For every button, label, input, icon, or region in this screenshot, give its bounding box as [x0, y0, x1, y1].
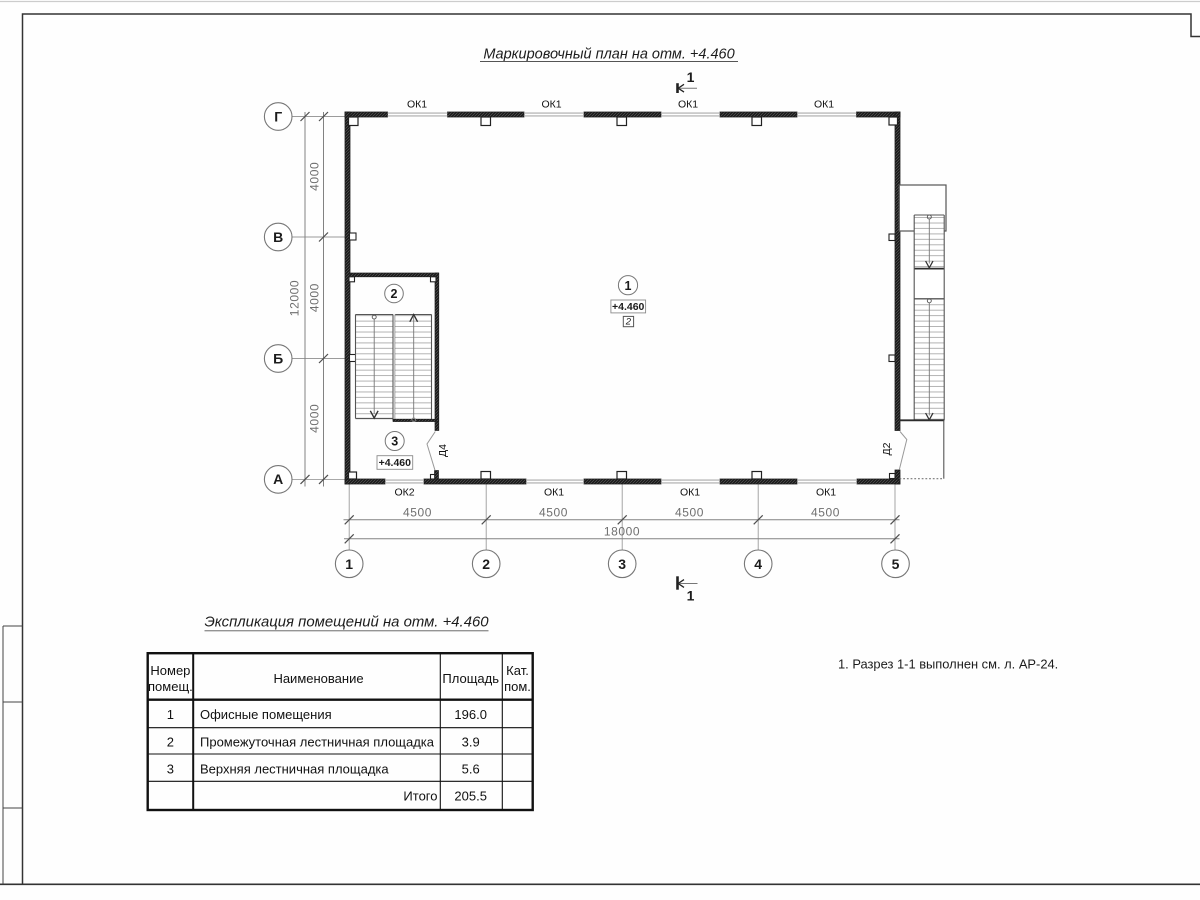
svg-text:Кат.: Кат.	[506, 663, 529, 678]
svg-text:3.9: 3.9	[462, 735, 480, 750]
svg-text:Итого: Итого	[403, 789, 437, 804]
svg-text:Верхняя лестничная площадка: Верхняя лестничная площадка	[200, 762, 389, 777]
svg-text:Экспликация помещений на отм.: Экспликация помещений на отм. +4.460	[204, 615, 489, 631]
svg-text:4500: 4500	[539, 506, 568, 520]
svg-text:12000: 12000	[288, 280, 302, 316]
svg-text:3: 3	[391, 435, 398, 449]
svg-text:2: 2	[391, 287, 398, 301]
svg-text:4: 4	[754, 556, 762, 572]
svg-text:В: В	[273, 229, 283, 245]
svg-text:+4.460: +4.460	[612, 301, 645, 313]
svg-text:1: 1	[687, 69, 695, 85]
svg-text:4500: 4500	[811, 506, 840, 520]
svg-text:1: 1	[167, 707, 174, 722]
svg-text:196.0: 196.0	[454, 707, 487, 722]
svg-text:ОК1: ОК1	[544, 487, 564, 499]
svg-text:1. Разрез 1-1 выполнен см. л.: 1. Разрез 1-1 выполнен см. л. АР-24.	[838, 656, 1058, 671]
svg-text:2: 2	[482, 556, 490, 572]
svg-text:Маркировочный план на отм. +4.: Маркировочный план на отм. +4.460	[483, 47, 734, 63]
svg-text:А: А	[273, 471, 283, 487]
svg-text:4500: 4500	[403, 506, 432, 520]
svg-text:4000: 4000	[308, 404, 322, 433]
svg-text:5: 5	[892, 556, 900, 572]
svg-text:3: 3	[167, 762, 174, 777]
svg-text:Наименование: Наименование	[273, 671, 363, 686]
svg-text:1: 1	[625, 279, 632, 293]
svg-text:205.5: 205.5	[454, 789, 487, 804]
svg-text:пом.: пом.	[504, 679, 531, 694]
svg-text:Офисные помещения: Офисные помещения	[200, 707, 332, 722]
svg-text:4500: 4500	[675, 506, 704, 520]
svg-text:2: 2	[625, 317, 632, 328]
svg-text:+4.460: +4.460	[379, 457, 412, 469]
svg-text:ОК1: ОК1	[678, 99, 698, 111]
svg-text:Б: Б	[273, 350, 283, 366]
svg-text:3: 3	[618, 556, 626, 572]
svg-text:5.6: 5.6	[462, 762, 480, 777]
svg-text:ОК1: ОК1	[541, 99, 561, 111]
svg-text:ОК1: ОК1	[816, 487, 836, 499]
svg-text:Д4: Д4	[437, 444, 449, 457]
svg-text:1: 1	[687, 588, 695, 604]
svg-text:Промежуточная лестничная площа: Промежуточная лестничная площадка	[200, 735, 435, 750]
svg-text:Г: Г	[274, 108, 282, 124]
svg-text:Номер: Номер	[150, 663, 190, 678]
svg-text:помещ.: помещ.	[148, 679, 193, 694]
svg-text:ОК1: ОК1	[814, 99, 834, 111]
svg-text:ОК1: ОК1	[407, 99, 427, 111]
svg-text:ОК2: ОК2	[394, 487, 414, 499]
svg-text:2: 2	[167, 735, 174, 750]
svg-text:1: 1	[345, 556, 353, 572]
svg-text:ОК1: ОК1	[680, 487, 700, 499]
svg-text:Площадь: Площадь	[442, 671, 499, 686]
svg-text:4000: 4000	[308, 283, 322, 312]
svg-text:Д2: Д2	[881, 442, 893, 455]
svg-text:4000: 4000	[308, 162, 322, 191]
svg-text:18000: 18000	[604, 524, 640, 538]
